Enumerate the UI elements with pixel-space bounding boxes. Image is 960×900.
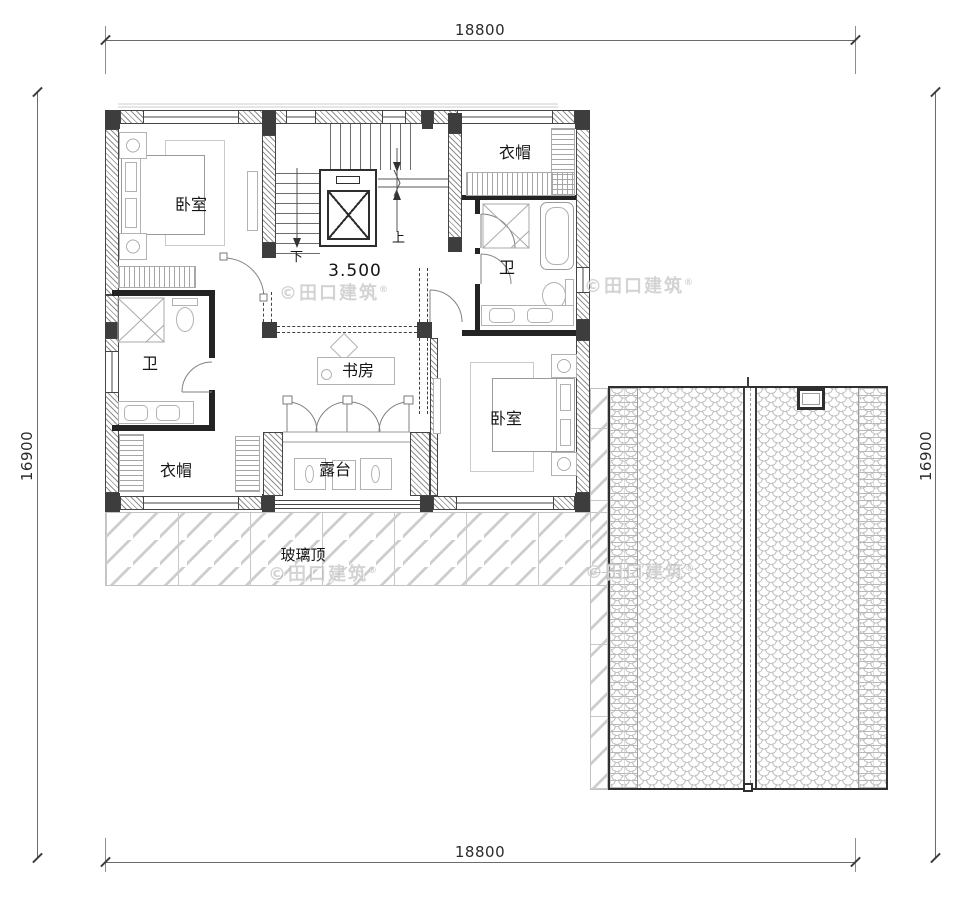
room-label-bedroom-br: 卧室 xyxy=(476,410,536,428)
watermark-reg: ® xyxy=(379,285,390,295)
room-label-bedroom-tl: 卧室 xyxy=(161,196,221,214)
dimension-line-left xyxy=(37,92,38,858)
room-label-study: 书房 xyxy=(328,362,388,380)
stair-walk-lines xyxy=(297,148,397,246)
floor-plan-sheet: 18800 18800 16900 16900 卧室 衣帽 卫 3.500 下 … xyxy=(0,0,960,900)
exterior-sill-lines xyxy=(118,104,558,107)
stair-direction-arrows xyxy=(293,162,401,248)
watermark-reg: ® xyxy=(368,566,379,576)
watermark-text: ©田口建筑 xyxy=(584,276,684,297)
doors-and-fixtures-layer xyxy=(0,0,960,900)
dimension-value-left: 16900 xyxy=(18,430,36,482)
stair-break-line xyxy=(378,170,448,196)
watermark-text: ©田口建筑 xyxy=(268,564,368,585)
watermark-reg: ® xyxy=(684,278,695,288)
room-label-terrace: 露台 xyxy=(305,461,365,479)
watermark: ©田口建筑® xyxy=(279,279,390,305)
dimension-line-top xyxy=(105,40,855,41)
watermark: ©田口建筑® xyxy=(584,272,695,298)
shower-left xyxy=(118,298,164,342)
room-label-bath-left: 卫 xyxy=(138,355,162,373)
stair-up-label: 上 xyxy=(390,232,407,246)
extension-line xyxy=(855,26,856,74)
dimension-line-bottom xyxy=(105,862,855,863)
extension-line xyxy=(105,26,106,74)
level-label: 3.500 xyxy=(320,262,390,281)
room-label-bath-tr: 卫 xyxy=(495,259,519,277)
watermark: ©田口建筑® xyxy=(268,560,379,586)
extension-line xyxy=(105,838,106,872)
watermark-text: ©田口建筑 xyxy=(279,283,379,304)
dimension-value-top: 18800 xyxy=(430,21,530,39)
extension-line xyxy=(855,838,856,872)
dimension-line-right xyxy=(935,92,936,858)
shower-top-right xyxy=(483,204,529,248)
terrace-edge-lines xyxy=(283,432,410,442)
room-label-closet-tr: 衣帽 xyxy=(485,144,545,162)
watermark: ©田口建筑® xyxy=(585,558,696,584)
room-label-closet-bl: 衣帽 xyxy=(146,462,206,480)
watermark-text: ©田口建筑 xyxy=(585,562,685,583)
dimension-value-right: 16900 xyxy=(917,430,935,482)
watermark-reg: ® xyxy=(685,564,696,574)
stair-down-label: 下 xyxy=(288,251,305,265)
dimension-value-bottom: 18800 xyxy=(430,843,530,861)
